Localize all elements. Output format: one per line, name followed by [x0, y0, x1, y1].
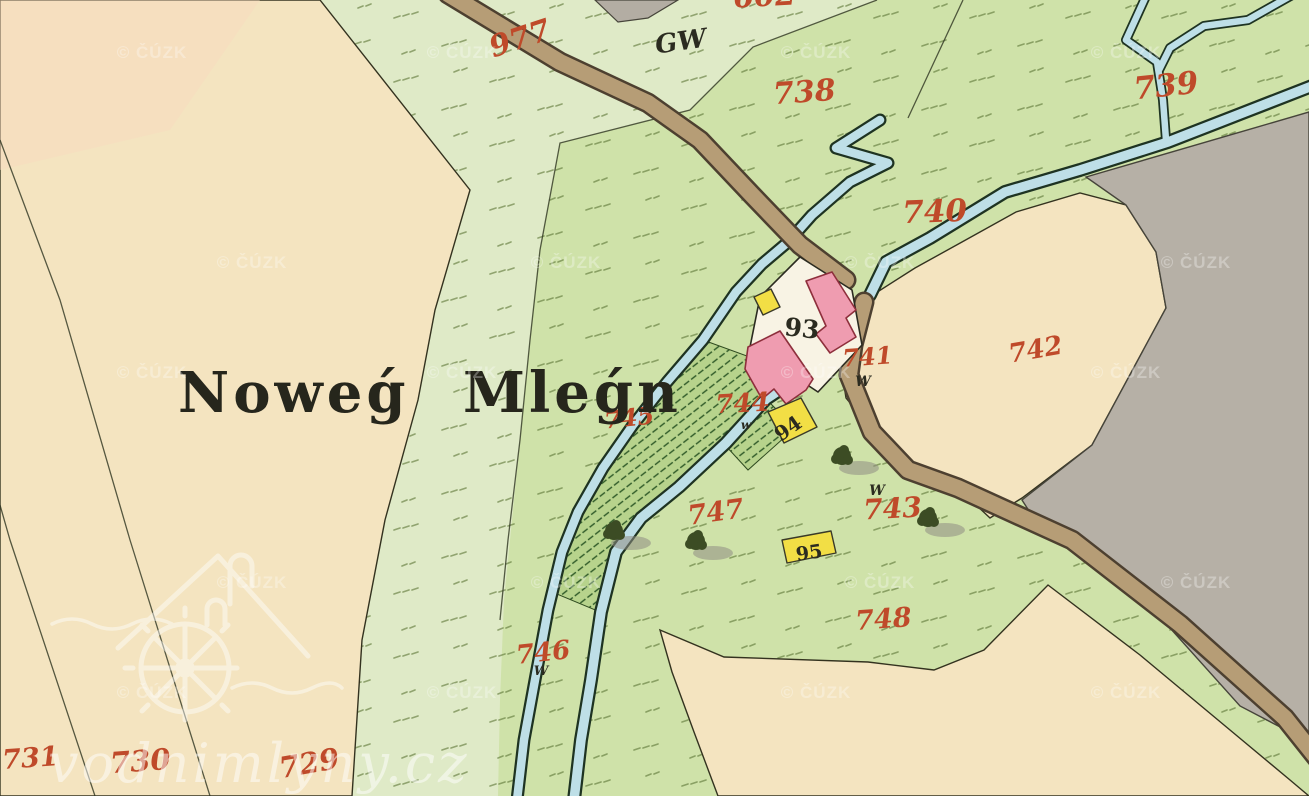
cuzk-watermark: © ČÚZK	[531, 573, 601, 592]
cuzk-watermark: © ČÚZK	[1161, 573, 1231, 592]
cuzk-watermark: © ČÚZK	[427, 683, 497, 702]
cuzk-watermark: © ČÚZK	[531, 253, 601, 272]
cuzk-watermark: © ČÚZK	[427, 363, 497, 382]
cuzk-watermark: © ČÚZK	[427, 43, 497, 62]
site-watermark-text: vodnimlyny.cz	[48, 732, 470, 795]
map-label-W: W	[869, 483, 886, 499]
cuzk-watermark: © ČÚZK	[117, 43, 187, 62]
cuzk-watermark: © ČÚZK	[117, 363, 187, 382]
cuzk-watermark: © ČÚZK	[1091, 363, 1161, 382]
historic-cadastral-map: 6029777387397407417427437447457467477487…	[0, 0, 1309, 796]
parcel-number-739: 739	[1132, 65, 1200, 108]
parcel-number-740: 740	[902, 193, 968, 231]
map-label-93: 93	[783, 312, 821, 344]
cuzk-watermark: © ČÚZK	[845, 573, 915, 592]
map-label-95: 95	[795, 540, 824, 565]
parcel-number-738: 738	[772, 73, 837, 112]
cuzk-watermark: © ČÚZK	[1161, 253, 1231, 272]
map-label-W: W	[534, 664, 550, 679]
parcel-number-744: 744	[715, 388, 771, 421]
wheel-spokes	[141, 624, 229, 712]
cuzk-watermark: © ČÚZK	[781, 363, 851, 382]
cuzk-watermark: © ČÚZK	[1091, 43, 1161, 62]
map-label-W: W	[855, 374, 872, 390]
cuzk-watermark: © ČÚZK	[217, 253, 287, 272]
map-label-w: w	[741, 418, 752, 432]
cadastral-map-screenshot: 6029777387397407417427437447457467477487…	[0, 0, 1309, 796]
cuzk-watermark: © ČÚZK	[781, 43, 851, 62]
cuzk-watermark: © ČÚZK	[781, 683, 851, 702]
cuzk-watermark: © ČÚZK	[1091, 683, 1161, 702]
cuzk-watermark: © ČÚZK	[845, 253, 915, 272]
parcel-number-748: 748	[854, 602, 913, 637]
